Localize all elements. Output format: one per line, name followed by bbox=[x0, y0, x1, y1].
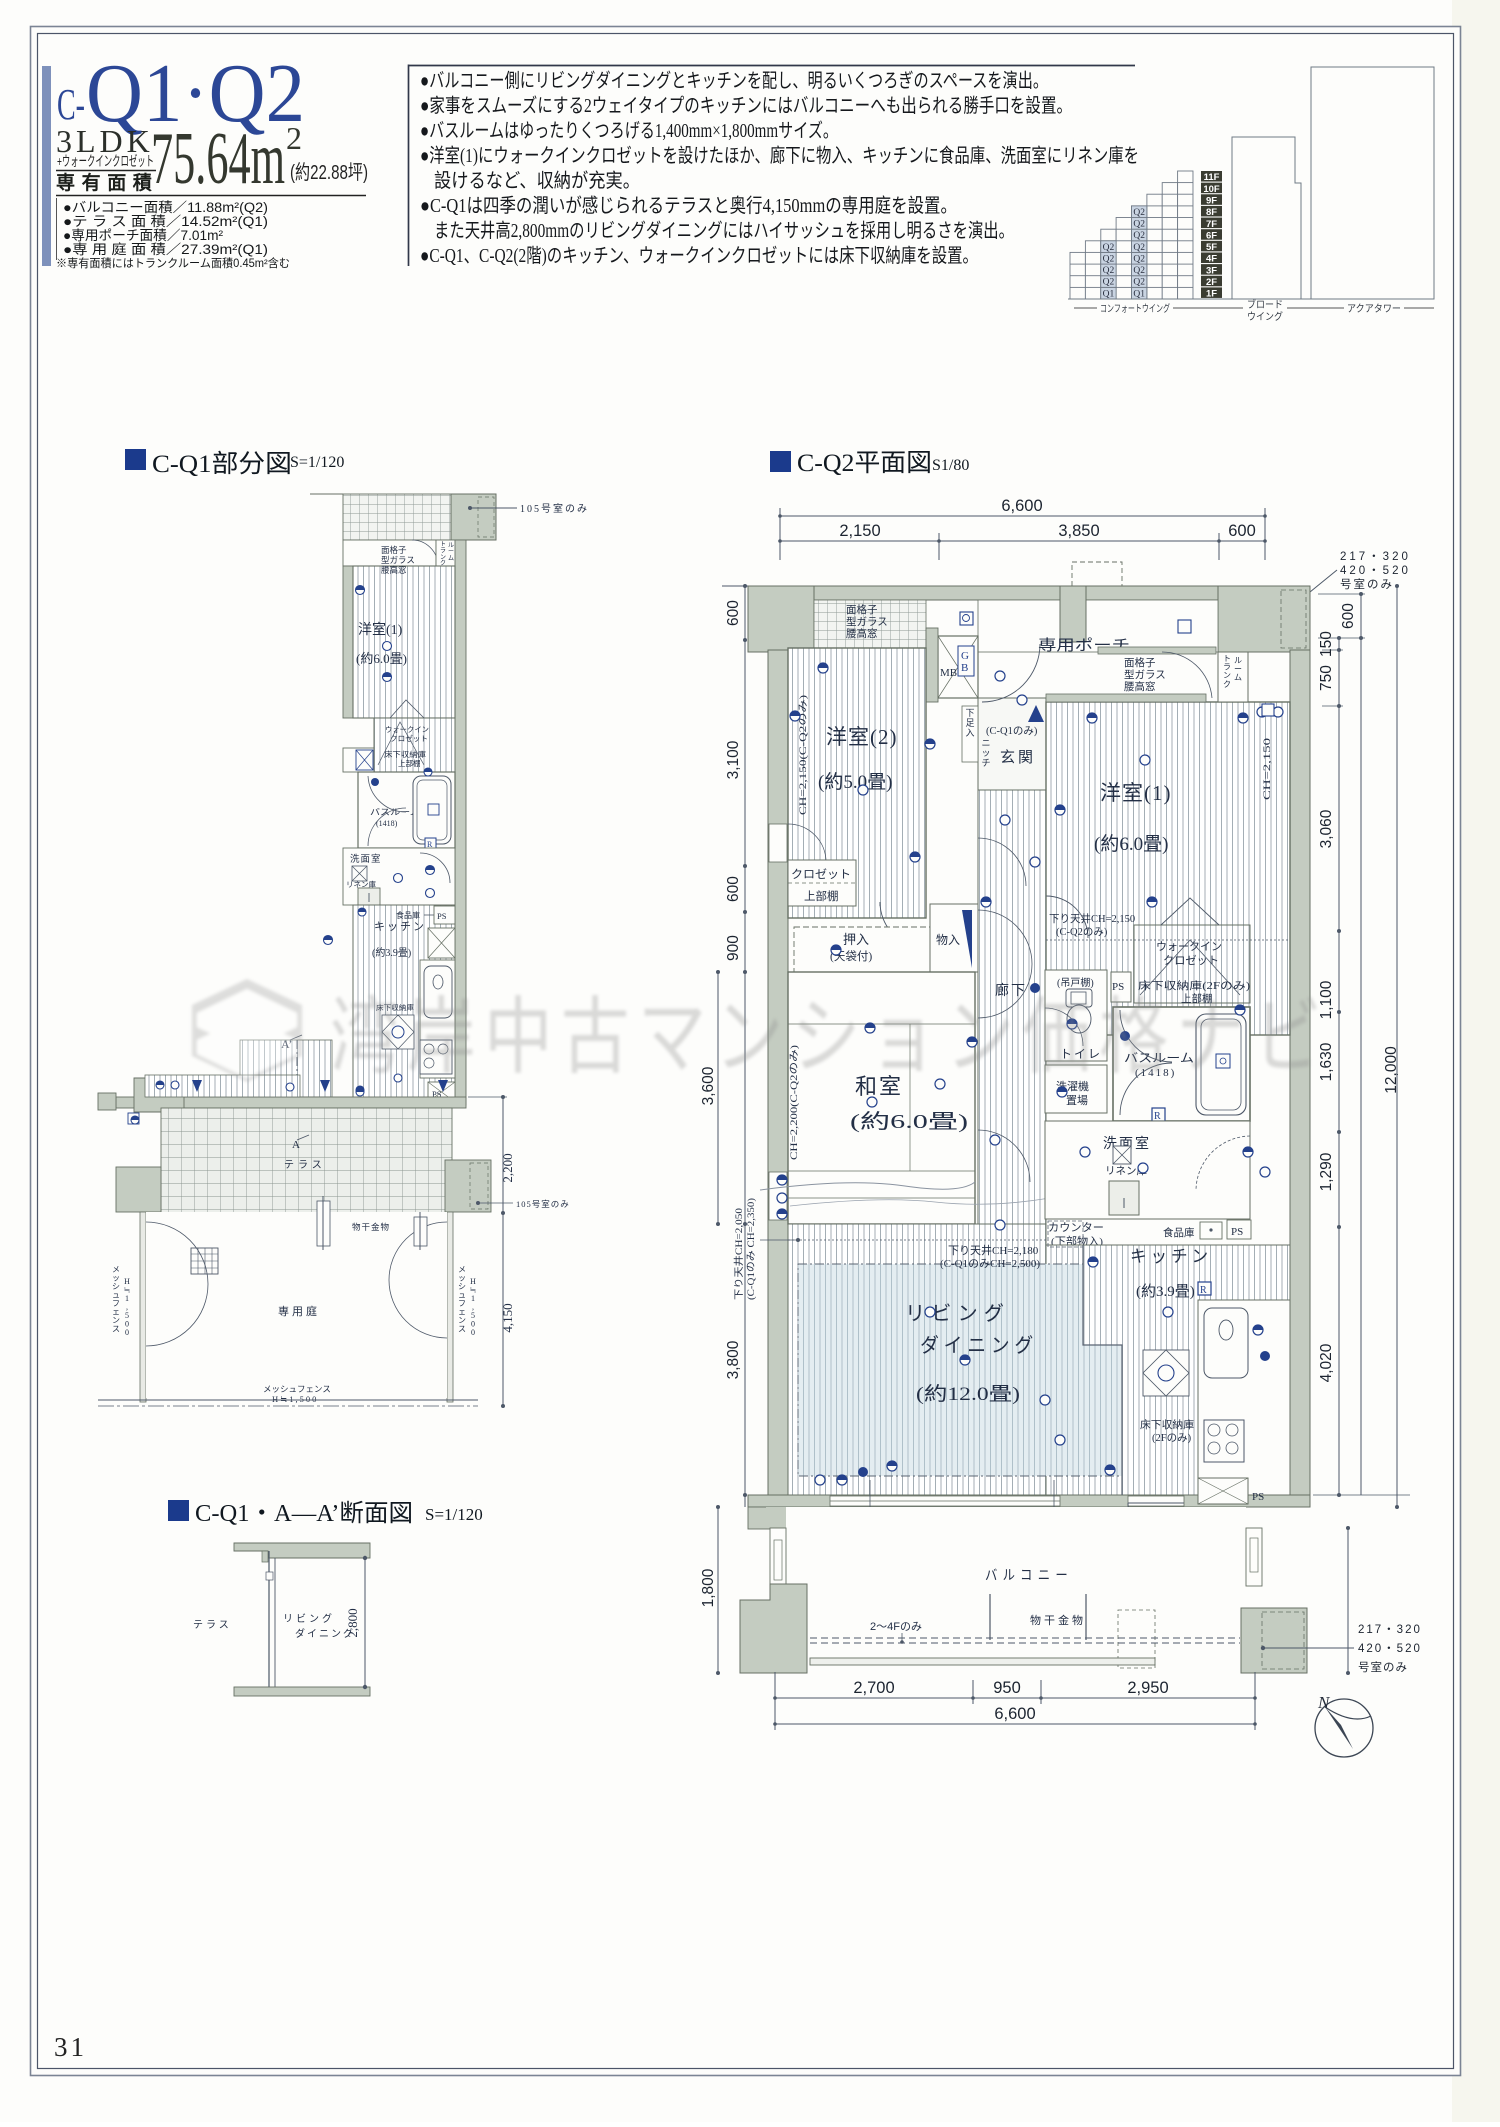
svg-text:3,100: 3,100 bbox=[725, 740, 742, 779]
svg-text:1,800: 1,800 bbox=[700, 1568, 717, 1607]
svg-text:950: 950 bbox=[993, 1679, 1021, 1697]
svg-text:10F: 10F bbox=[1203, 184, 1220, 195]
svg-text:600: 600 bbox=[725, 876, 742, 902]
svg-text:(約5.0畳): (約5.0畳) bbox=[818, 771, 892, 793]
svg-text:●C-Q1、C-Q2(2階)のキッチン、ウォークインクロゼッ: ●C-Q1、C-Q2(2階)のキッチン、ウォークインクロゼットには床下収納庫を設… bbox=[420, 245, 978, 267]
svg-text:物干金物: 物干金物 bbox=[352, 1222, 390, 1232]
svg-text:PS: PS bbox=[1252, 1491, 1264, 1503]
svg-text:105号室のみ: 105号室のみ bbox=[520, 502, 589, 515]
svg-text:食品庫: 食品庫 bbox=[1163, 1226, 1195, 1239]
svg-text:ー: ー bbox=[448, 549, 454, 555]
svg-text:洗面室: 洗面室 bbox=[350, 853, 382, 865]
svg-text:号室のみ: 号室のみ bbox=[1358, 1660, 1408, 1674]
svg-text:2,800: 2,800 bbox=[345, 1608, 360, 1637]
svg-text:Q2: Q2 bbox=[1133, 278, 1145, 288]
svg-text:(約3.9畳): (約3.9畳) bbox=[1136, 1283, 1195, 1300]
svg-text:C-: C- bbox=[57, 80, 85, 129]
svg-text:(1418): (1418) bbox=[376, 819, 398, 828]
svg-text:Q2: Q2 bbox=[1133, 254, 1145, 264]
svg-text:5F: 5F bbox=[1206, 242, 1217, 253]
svg-text:150: 150 bbox=[1318, 631, 1335, 657]
svg-text:床下収納庫: 床下収納庫 bbox=[1140, 1418, 1195, 1431]
svg-text:ム: ム bbox=[448, 555, 454, 562]
svg-text:4F: 4F bbox=[1206, 254, 1217, 265]
svg-text:6F: 6F bbox=[1206, 230, 1217, 241]
svg-text:ラ: ラ bbox=[440, 547, 446, 554]
svg-text:●専 用 庭 面 積／27.39m²(Q1): ●専 用 庭 面 積／27.39m²(Q1) bbox=[63, 241, 268, 257]
svg-text:B: B bbox=[961, 662, 968, 674]
svg-text:●バルコニー側にリビングダイニングとキッチンを配し、明るいく: ●バルコニー側にリビングダイニングとキッチンを配し、明るいくつろぎのスペースを演… bbox=[420, 70, 1048, 92]
svg-text:ス: ス bbox=[112, 1325, 120, 1334]
svg-text:(C-Q2のみ): (C-Q2のみ) bbox=[1056, 927, 1108, 938]
svg-text:7F: 7F bbox=[1206, 219, 1217, 230]
svg-text:Q2: Q2 bbox=[1133, 243, 1145, 253]
svg-text:Q1: Q1 bbox=[1133, 289, 1145, 299]
svg-text:設けるなど、収納が充実。: 設けるなど、収納が充実。 bbox=[434, 170, 640, 192]
svg-text:面格子: 面格子 bbox=[1124, 656, 1156, 669]
svg-text:リビング: リビング bbox=[905, 1302, 1010, 1325]
svg-text:置場: 置場 bbox=[1066, 1094, 1088, 1107]
svg-text:(約12.0畳): (約12.0畳) bbox=[916, 1383, 1020, 1405]
svg-text:R: R bbox=[1154, 1111, 1161, 1122]
svg-text:6,600: 6,600 bbox=[1001, 497, 1042, 515]
svg-text:上部棚: 上部棚 bbox=[398, 758, 421, 768]
svg-text:ス: ス bbox=[458, 1325, 466, 1334]
svg-text:●洋室(1)にウォークインクロゼットを設けたほか、廊下に物入: ●洋室(1)にウォークインクロゼットを設けたほか、廊下に物入、キッチンに食品庫、… bbox=[420, 145, 1139, 167]
svg-text:0: 0 bbox=[125, 1328, 129, 1337]
svg-text:●バスルームはゆったりくつろげる1,400mm×1,800m: ●バスルームはゆったりくつろげる1,400mm×1,800mmサイズ。 bbox=[420, 120, 838, 142]
svg-text:リビング: リビング bbox=[283, 1612, 335, 1625]
svg-text:●家事をスムーズにする2ウェイタイプのキッチンにはバルコニー: ●家事をスムーズにする2ウェイタイプのキッチンにはバルコニーへも出られる勝手口を… bbox=[420, 95, 1072, 117]
svg-text:玄関: 玄関 bbox=[1000, 749, 1036, 766]
svg-text:物入: 物入 bbox=[936, 933, 960, 947]
svg-text:1F: 1F bbox=[1206, 289, 1217, 300]
svg-text:2,700: 2,700 bbox=[853, 1679, 894, 1697]
svg-text:R: R bbox=[1200, 1285, 1207, 1296]
svg-text:6,600: 6,600 bbox=[994, 1705, 1035, 1723]
svg-text:型ガラス: 型ガラス bbox=[381, 555, 415, 565]
svg-text:Q1: Q1 bbox=[1103, 289, 1115, 299]
svg-text:3F: 3F bbox=[1206, 265, 1217, 276]
svg-text:C-Q1部分図: C-Q1部分図 bbox=[152, 450, 292, 478]
svg-text:Q2: Q2 bbox=[1103, 243, 1115, 253]
svg-text:S1/80: S1/80 bbox=[932, 457, 969, 474]
svg-text:専用庭: 専用庭 bbox=[278, 1304, 320, 1318]
svg-text:Q2: Q2 bbox=[1103, 266, 1115, 276]
svg-text:下り天井CH=2,180: 下り天井CH=2,180 bbox=[948, 1243, 1039, 1257]
svg-text:面格子: 面格子 bbox=[846, 603, 878, 616]
svg-text:テラス: テラス bbox=[193, 1619, 232, 1631]
svg-text:3,850: 3,850 bbox=[1058, 522, 1099, 540]
svg-text:(C-Q1のみ CH=2,350): (C-Q1のみ CH=2,350) bbox=[746, 1198, 757, 1300]
svg-text:750: 750 bbox=[1318, 665, 1335, 691]
svg-text:●C-Q1は四季の潤いが感じられるテラスと奥行4,150mm: ●C-Q1は四季の潤いが感じられるテラスと奥行4,150mmの専用庭を設置。 bbox=[420, 195, 957, 217]
svg-text:下: 下 bbox=[965, 708, 974, 718]
svg-text:(約22.88坪): (約22.88坪) bbox=[290, 161, 368, 184]
svg-text:+ウォークインクロゼット: +ウォークインクロゼット bbox=[57, 153, 154, 169]
svg-text:2: 2 bbox=[286, 120, 302, 156]
svg-text:洋室(2): 洋室(2) bbox=[826, 725, 898, 749]
svg-text:ト: ト bbox=[440, 542, 446, 548]
svg-text:ブロード: ブロード bbox=[1247, 298, 1283, 311]
svg-text:上部棚: 上部棚 bbox=[804, 889, 839, 903]
svg-text:31: 31 bbox=[54, 2032, 87, 2062]
svg-text:バルコニー: バルコニー bbox=[985, 1567, 1073, 1583]
svg-text:2,200: 2,200 bbox=[500, 1153, 515, 1182]
svg-text:(約3.9畳): (約3.9畳) bbox=[372, 946, 411, 959]
svg-text:(2Fのみ): (2Fのみ) bbox=[1152, 1433, 1192, 1444]
svg-text:食品庫: 食品庫 bbox=[396, 910, 420, 920]
svg-text:0: 0 bbox=[471, 1328, 475, 1337]
svg-text:洋室(1): 洋室(1) bbox=[358, 621, 403, 638]
svg-text:型ガラス: 型ガラス bbox=[1124, 668, 1166, 681]
svg-text:CH=2,150: CH=2,150 bbox=[1263, 738, 1273, 800]
svg-text:入: 入 bbox=[965, 728, 974, 738]
svg-text:洋室(1): 洋室(1) bbox=[1100, 781, 1172, 805]
svg-text:コンフォートウイング: コンフォートウイング bbox=[1100, 302, 1170, 315]
svg-text:キッチン: キッチン bbox=[374, 920, 426, 933]
svg-text:2〜4Fのみ: 2〜4Fのみ bbox=[870, 1620, 922, 1633]
svg-text:H≒1,500: H≒1,500 bbox=[272, 1394, 318, 1404]
svg-text:リネン庫: リネン庫 bbox=[346, 879, 376, 889]
svg-text:腰高窓: 腰高窓 bbox=[381, 565, 407, 575]
svg-text:アクアタワー: アクアタワー bbox=[1347, 303, 1401, 315]
svg-text:湾岸中古マンション価格ナビ: 湾岸中古マンション価格ナビ bbox=[330, 990, 1330, 1084]
svg-text:Q2: Q2 bbox=[1133, 266, 1145, 276]
svg-text:ル: ル bbox=[448, 543, 454, 549]
svg-text:(約6.0畳): (約6.0畳) bbox=[1094, 833, 1168, 855]
svg-text:Q2: Q2 bbox=[1103, 254, 1115, 264]
svg-text:C-Q2平面図: C-Q2平面図 bbox=[797, 450, 932, 477]
svg-text:下り天井CH=2,050: 下り天井CH=2,050 bbox=[733, 1208, 745, 1300]
svg-text:PS: PS bbox=[1231, 1226, 1243, 1238]
svg-text:S=1/120: S=1/120 bbox=[425, 1505, 483, 1524]
svg-text:腰高窓: 腰高窓 bbox=[846, 627, 878, 640]
svg-text:PS: PS bbox=[437, 911, 447, 921]
svg-text:メッシュフェンス: メッシュフェンス bbox=[263, 1384, 331, 1394]
svg-text:●バルコニー面積／11.88m²(Q2): ●バルコニー面積／11.88m²(Q2) bbox=[63, 200, 268, 215]
svg-text:キッチン: キッチン bbox=[1130, 1247, 1212, 1266]
svg-text:420・520: 420・520 bbox=[1340, 565, 1411, 577]
svg-text:ク: ク bbox=[1223, 680, 1231, 689]
svg-text:Q2: Q2 bbox=[1133, 231, 1145, 241]
svg-text:ウイング: ウイング bbox=[1247, 310, 1283, 323]
svg-text:75.64m: 75.64m bbox=[151, 118, 285, 200]
svg-text:また天井高2,800mmのリビングダイニングにはハイサッシュ: また天井高2,800mmのリビングダイニングにはハイサッシュを採用し明るさを演出… bbox=[434, 220, 1014, 242]
svg-text:(C-Q1のみ): (C-Q1のみ) bbox=[986, 726, 1038, 737]
svg-text:カウンター: カウンター bbox=[1048, 1221, 1104, 1234]
svg-text:(約6.0畳): (約6.0畳) bbox=[850, 1110, 968, 1133]
svg-text:600: 600 bbox=[1228, 522, 1256, 540]
svg-text:ダイニング: ダイニング bbox=[920, 1334, 1038, 1357]
svg-text:S=1/120: S=1/120 bbox=[290, 454, 344, 471]
svg-text:A: A bbox=[292, 1139, 300, 1151]
svg-text:(吊戸棚): (吊戸棚) bbox=[1057, 976, 1094, 989]
svg-text:●テ ラ ス 面 積／14.52m²(Q1): ●テ ラ ス 面 積／14.52m²(Q1) bbox=[63, 214, 268, 229]
svg-text:ッ: ッ bbox=[981, 748, 990, 758]
svg-text:号室のみ: 号室のみ bbox=[1340, 577, 1394, 591]
svg-text:217・320: 217・320 bbox=[1340, 551, 1411, 563]
svg-text:2,950: 2,950 bbox=[1127, 1679, 1168, 1697]
svg-text:MB: MB bbox=[940, 667, 957, 679]
svg-text:2F: 2F bbox=[1206, 277, 1217, 288]
svg-text:(C-Q1のみCH=2,500): (C-Q1のみCH=2,500) bbox=[940, 1257, 1040, 1270]
svg-text:N: N bbox=[1317, 1693, 1331, 1712]
svg-text:ン: ン bbox=[440, 555, 446, 561]
svg-text:217・320: 217・320 bbox=[1358, 1624, 1422, 1636]
svg-text:C-Q1・A—A’断面図: C-Q1・A—A’断面図 bbox=[195, 1500, 413, 1527]
svg-text:(約6.0畳): (約6.0畳) bbox=[356, 651, 407, 666]
svg-text:600: 600 bbox=[1340, 603, 1357, 629]
svg-text:4,020: 4,020 bbox=[1318, 1343, 1335, 1382]
svg-text:物干金物: 物干金物 bbox=[1030, 1613, 1086, 1627]
svg-text:2,150: 2,150 bbox=[839, 522, 880, 540]
svg-text:●専用ポーチ面積／7.01m²: ●専用ポーチ面積／7.01m² bbox=[63, 228, 224, 243]
svg-text:Q2: Q2 bbox=[1133, 220, 1145, 230]
svg-text:8F: 8F bbox=[1206, 207, 1217, 218]
svg-text:ウォークイン: ウォークイン bbox=[1156, 940, 1222, 953]
svg-text:ウォークイン: ウォークイン bbox=[385, 725, 429, 734]
svg-text:テラス: テラス bbox=[284, 1159, 326, 1171]
svg-text:105号室のみ: 105号室のみ bbox=[516, 1199, 570, 1209]
svg-text:11F: 11F bbox=[1204, 172, 1220, 183]
svg-text:ニ: ニ bbox=[981, 738, 990, 748]
svg-text:腰高窓: 腰高窓 bbox=[1124, 680, 1156, 693]
svg-text:3,060: 3,060 bbox=[1318, 809, 1335, 848]
svg-text:クロゼット: クロゼット bbox=[791, 868, 851, 881]
svg-text:900: 900 bbox=[725, 935, 742, 961]
svg-text:※専有面積にはトランクルーム面積0.45m²含む: ※専有面積にはトランクルーム面積0.45m²含む bbox=[56, 256, 290, 270]
svg-text:面格子: 面格子 bbox=[381, 545, 407, 555]
svg-text:3,800: 3,800 bbox=[725, 1340, 742, 1379]
svg-text:ム: ム bbox=[1234, 673, 1242, 682]
svg-text:4,150: 4,150 bbox=[500, 1303, 515, 1332]
svg-text:G: G bbox=[961, 650, 969, 662]
svg-text:1,290: 1,290 bbox=[1318, 1152, 1335, 1191]
svg-text:足: 足 bbox=[965, 718, 974, 728]
svg-text:420・520: 420・520 bbox=[1358, 1643, 1422, 1655]
svg-text:下り天井CH=2,150: 下り天井CH=2,150 bbox=[1049, 912, 1135, 925]
svg-text:600: 600 bbox=[725, 600, 742, 626]
svg-text:9F: 9F bbox=[1206, 195, 1217, 206]
svg-text:Q2: Q2 bbox=[1133, 208, 1145, 218]
svg-text:チ: チ bbox=[981, 758, 990, 768]
svg-text:Q2: Q2 bbox=[1103, 278, 1115, 288]
svg-text:押入: 押入 bbox=[843, 932, 869, 947]
svg-text:型ガラス: 型ガラス bbox=[846, 615, 888, 628]
svg-text:専有面積: 専有面積 bbox=[56, 171, 158, 194]
